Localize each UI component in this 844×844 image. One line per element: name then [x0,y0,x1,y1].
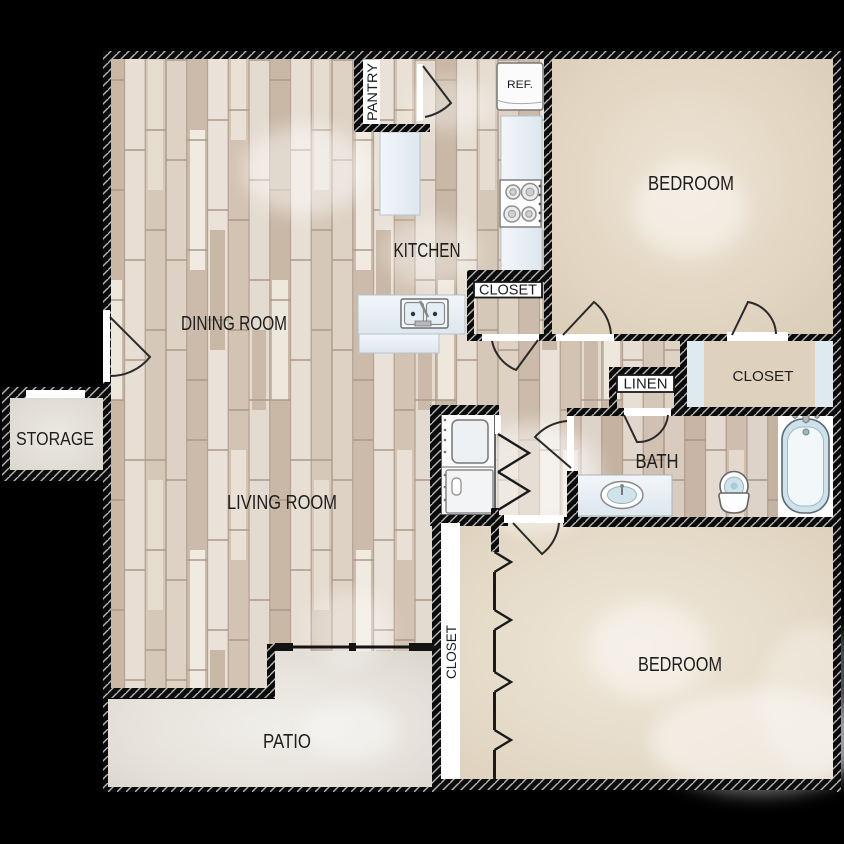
svg-text:BATH: BATH [636,451,679,473]
svg-text:REF.: REF. [507,79,533,91]
svg-text:LINEN: LINEN [624,376,668,393]
svg-text:PANTRY: PANTRY [365,63,380,121]
svg-text:LIVING ROOM: LIVING ROOM [227,492,337,514]
svg-text:KITCHEN: KITCHEN [394,240,461,262]
svg-text:CLOSET: CLOSET [479,282,537,299]
svg-text:PATIO: PATIO [263,731,311,753]
svg-text:STORAGE: STORAGE [16,429,94,449]
svg-text:DINING ROOM: DINING ROOM [181,313,287,335]
svg-text:BEDROOM: BEDROOM [638,654,722,676]
svg-text:BEDROOM: BEDROOM [648,173,734,195]
svg-text:CLOSET: CLOSET [443,625,459,679]
svg-text:CLOSET: CLOSET [733,368,794,385]
